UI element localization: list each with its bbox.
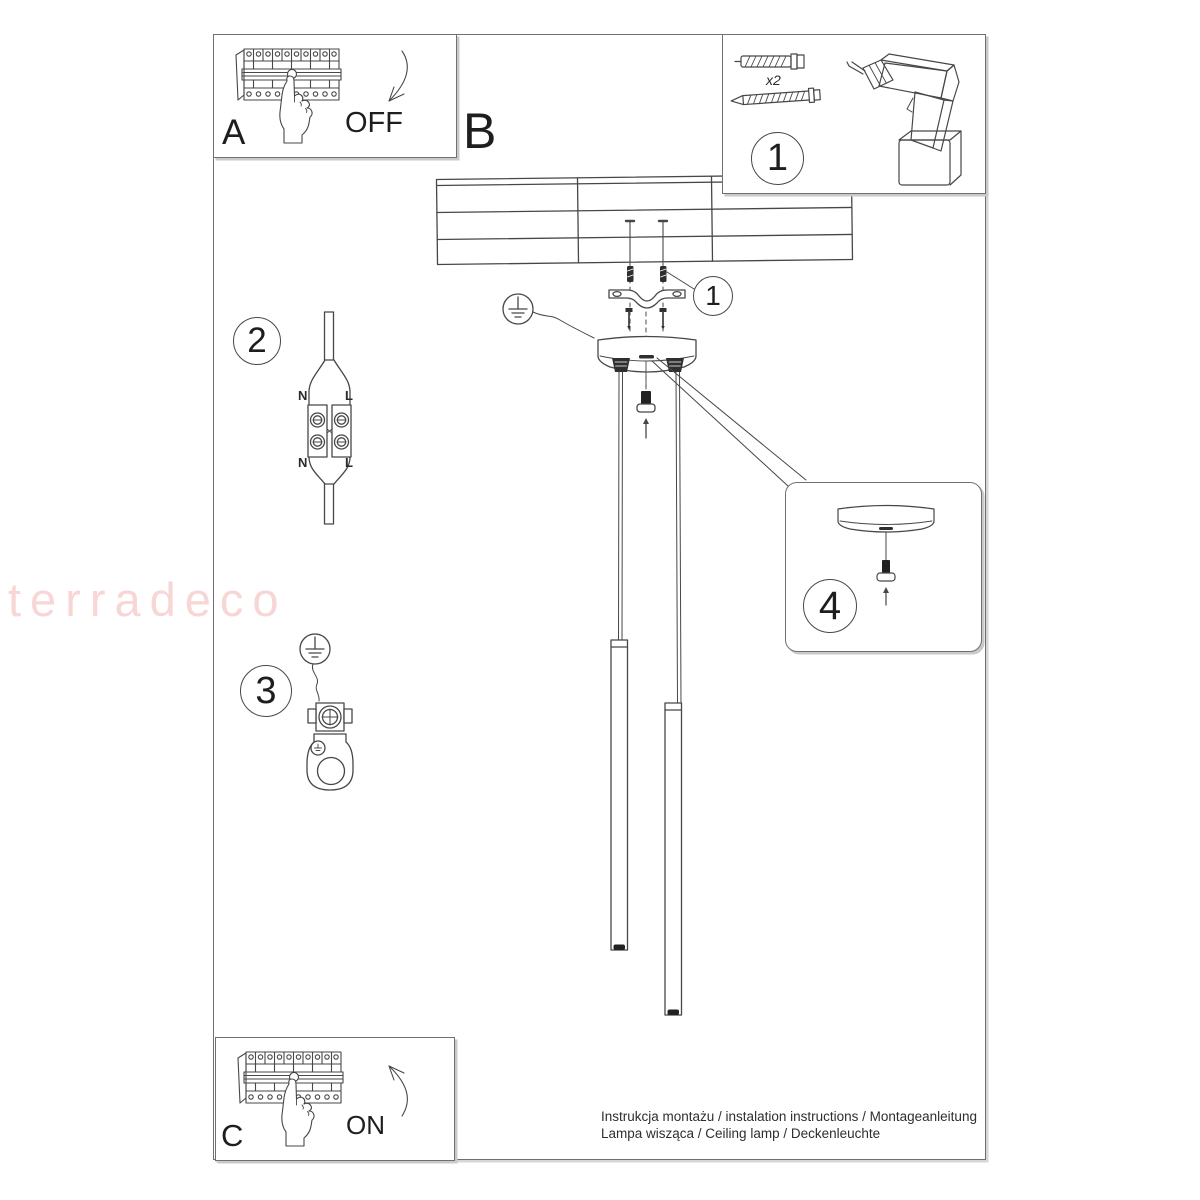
- wall-plug-icon: [735, 54, 804, 69]
- instruction-sheet: terradeco: [0, 0, 1200, 1200]
- callout-number: 2: [247, 321, 266, 361]
- off-label: OFF: [345, 107, 403, 140]
- hand-icon: [282, 1079, 314, 1146]
- callout-3-ground: 3: [240, 665, 292, 717]
- footer-line-2: Lampa wisząca / Ceiling lamp / Deckenleu…: [601, 1125, 977, 1142]
- panel-c-power-on: [215, 1037, 455, 1161]
- breaker-panel-on-art: [216, 1038, 452, 1158]
- wire-label-l-bottom: L: [345, 455, 353, 470]
- screw-icon: [731, 88, 821, 108]
- footer-line-1: Instrukcja montażu / instalation instruc…: [601, 1108, 977, 1125]
- step-b-label: B: [463, 102, 496, 160]
- callout-2-wiring: 2: [233, 317, 281, 365]
- step-c-label: C: [221, 1118, 243, 1154]
- callout-4-canopy: 4: [803, 579, 857, 633]
- drill-icon: [847, 54, 961, 185]
- arrow-up-icon: [389, 1066, 407, 1116]
- wire-label-l-top: L: [345, 388, 353, 403]
- canopy-icon: [838, 506, 934, 533]
- anchor-quantity-label: x2: [766, 72, 781, 88]
- callout-number: 1: [767, 137, 788, 180]
- callout-number: 4: [819, 584, 841, 629]
- wire-label-n-bottom: N: [298, 455, 307, 470]
- arrow-down-icon: [389, 51, 407, 101]
- callout-number: 3: [255, 670, 276, 713]
- callout-1-bracket: 1: [693, 276, 733, 316]
- hand-icon: [280, 76, 312, 143]
- strain-relief-icon: [877, 560, 895, 605]
- on-label: ON: [346, 1110, 385, 1141]
- footer-text: Instrukcja montażu / instalation instruc…: [601, 1108, 977, 1142]
- wire-label-n-top: N: [298, 388, 307, 403]
- step-a-label: A: [222, 113, 245, 153]
- breaker-panel-off-art: [214, 35, 454, 155]
- callout-number: 1: [705, 280, 721, 312]
- callout-1-parts: 1: [751, 132, 804, 185]
- panel-a-power-off: [213, 34, 457, 158]
